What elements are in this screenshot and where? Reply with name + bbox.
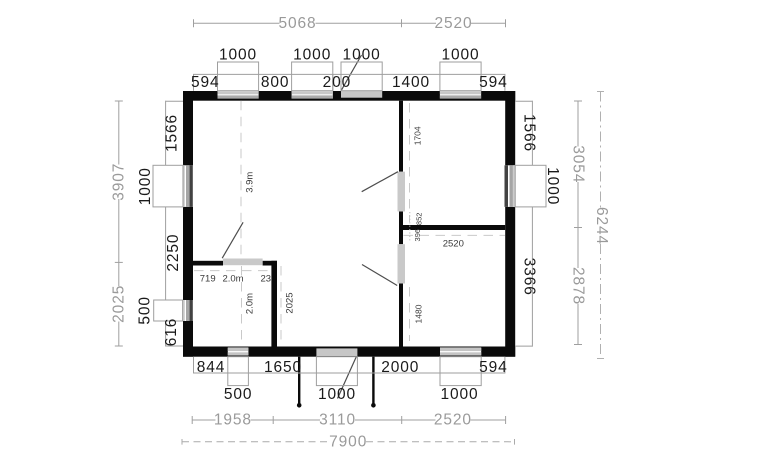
svg-text:852: 852	[415, 213, 424, 226]
svg-text:2878: 2878	[570, 267, 587, 305]
svg-text:1000: 1000	[544, 167, 561, 205]
svg-text:3054: 3054	[570, 145, 587, 183]
svg-text:1650: 1650	[264, 359, 302, 376]
svg-text:3907: 3907	[110, 163, 127, 201]
svg-text:1566: 1566	[521, 114, 538, 152]
svg-text:1000: 1000	[219, 47, 257, 64]
svg-text:5068: 5068	[278, 15, 316, 32]
svg-text:2520: 2520	[443, 238, 464, 249]
svg-text:200: 200	[323, 74, 352, 91]
svg-text:2025: 2025	[284, 292, 295, 313]
svg-text:3.9m: 3.9m	[245, 172, 256, 193]
svg-text:2025: 2025	[110, 285, 127, 323]
svg-text:1000: 1000	[440, 386, 478, 403]
svg-text:23: 23	[261, 274, 272, 285]
svg-text:500: 500	[137, 296, 154, 325]
svg-text:2.0m: 2.0m	[245, 293, 256, 314]
svg-text:594: 594	[479, 74, 508, 91]
svg-text:2520: 2520	[434, 412, 472, 429]
svg-text:396: 396	[413, 229, 422, 242]
svg-text:1480: 1480	[413, 304, 423, 323]
svg-text:7900: 7900	[329, 433, 367, 450]
svg-text:6244: 6244	[593, 207, 610, 245]
svg-text:719: 719	[200, 274, 216, 285]
svg-text:2.0m: 2.0m	[222, 274, 243, 285]
svg-text:2520: 2520	[434, 15, 472, 32]
svg-text:844: 844	[197, 359, 226, 376]
svg-text:500: 500	[224, 386, 253, 403]
svg-text:800: 800	[261, 74, 290, 91]
svg-text:3366: 3366	[521, 258, 538, 296]
svg-text:1400: 1400	[392, 74, 430, 91]
svg-text:2250: 2250	[165, 234, 182, 272]
svg-text:1566: 1566	[164, 114, 181, 152]
svg-text:594: 594	[191, 74, 220, 91]
svg-text:2000: 2000	[381, 359, 419, 376]
svg-text:1704: 1704	[413, 126, 423, 145]
svg-text:1000: 1000	[441, 47, 479, 64]
svg-text:1000: 1000	[137, 167, 154, 205]
svg-text:1000: 1000	[318, 386, 356, 403]
svg-text:3110: 3110	[319, 412, 356, 429]
svg-text:1000: 1000	[293, 47, 331, 64]
svg-text:594: 594	[479, 359, 508, 376]
svg-text:1000: 1000	[343, 47, 381, 64]
svg-text:1958: 1958	[214, 412, 252, 429]
svg-text:616: 616	[163, 318, 180, 347]
